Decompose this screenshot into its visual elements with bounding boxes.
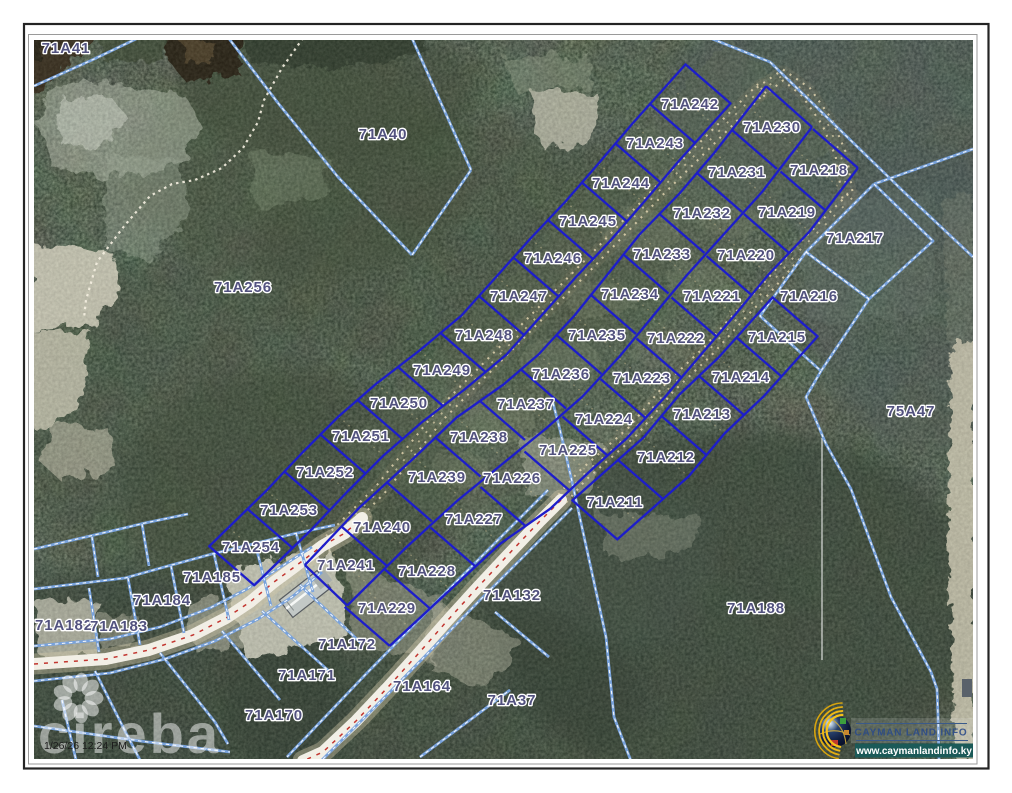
svg-text:71A253: 71A253 <box>260 502 318 519</box>
svg-text:71A217: 71A217 <box>826 230 884 247</box>
svg-text:71A227: 71A227 <box>445 511 503 528</box>
svg-text:71A248: 71A248 <box>455 327 513 344</box>
svg-text:71A241: 71A241 <box>317 557 375 574</box>
svg-text:71A185: 71A185 <box>183 569 241 586</box>
svg-text:71A236: 71A236 <box>532 366 590 383</box>
svg-text:71A225: 71A225 <box>539 442 597 459</box>
svg-text:71A249: 71A249 <box>413 362 471 379</box>
svg-text:71A245: 71A245 <box>559 213 617 230</box>
svg-text:71A234: 71A234 <box>601 286 659 303</box>
svg-text:71A243: 71A243 <box>626 135 684 152</box>
svg-text:1/26/26 12:24 PM: 1/26/26 12:24 PM <box>44 740 127 752</box>
svg-text:71A215: 71A215 <box>748 329 806 346</box>
svg-text:71A182: 71A182 <box>35 617 93 634</box>
svg-text:71A171: 71A171 <box>278 667 336 684</box>
svg-text:71A226: 71A226 <box>483 470 541 487</box>
svg-text:71A238: 71A238 <box>450 429 508 446</box>
svg-text:71A172: 71A172 <box>318 636 376 653</box>
svg-text:71A247: 71A247 <box>490 288 548 305</box>
svg-text:71A239: 71A239 <box>408 469 466 486</box>
svg-text:www.caymanlandinfo.ky: www.caymanlandinfo.ky <box>855 746 972 757</box>
svg-text:71A37: 71A37 <box>488 692 537 709</box>
svg-text:71A223: 71A223 <box>613 370 671 387</box>
svg-text:71A216: 71A216 <box>780 288 838 305</box>
svg-text:71A211: 71A211 <box>586 494 643 511</box>
svg-text:71A232: 71A232 <box>673 205 731 222</box>
svg-text:71A250: 71A250 <box>370 395 428 412</box>
svg-text:71A218: 71A218 <box>790 162 848 179</box>
svg-text:71A214: 71A214 <box>712 369 770 386</box>
svg-text:71A220: 71A220 <box>717 247 775 264</box>
svg-text:71A132: 71A132 <box>483 587 541 604</box>
svg-text:71A231: 71A231 <box>708 164 766 181</box>
svg-text:71A251: 71A251 <box>332 428 390 445</box>
svg-text:71A256: 71A256 <box>214 279 272 296</box>
svg-text:71A228: 71A228 <box>398 563 456 580</box>
svg-text:71A170: 71A170 <box>245 707 303 724</box>
svg-text:75A47: 75A47 <box>887 403 936 420</box>
svg-text:71A237: 71A237 <box>497 396 555 413</box>
svg-text:71A164: 71A164 <box>393 678 451 695</box>
svg-text:71A213: 71A213 <box>673 406 731 423</box>
svg-text:cireba: cireba <box>38 702 221 765</box>
svg-text:71A224: 71A224 <box>575 411 633 428</box>
svg-text:71A244: 71A244 <box>592 175 650 192</box>
svg-text:71A212: 71A212 <box>637 449 695 466</box>
svg-text:71A229: 71A229 <box>358 600 416 617</box>
svg-text:71A41: 71A41 <box>42 40 91 57</box>
svg-text:71A40: 71A40 <box>359 126 408 143</box>
svg-text:71A221: 71A221 <box>683 288 741 305</box>
svg-text:71A219: 71A219 <box>758 204 816 221</box>
svg-text:71A184: 71A184 <box>133 592 191 609</box>
svg-text:71A240: 71A240 <box>353 519 411 536</box>
svg-text:71A242: 71A242 <box>661 96 719 113</box>
svg-text:71A254: 71A254 <box>222 539 280 556</box>
svg-text:CAYMAN LAND INFO: CAYMAN LAND INFO <box>855 728 968 739</box>
svg-text:71A252: 71A252 <box>296 464 354 481</box>
svg-text:71A233: 71A233 <box>633 246 691 263</box>
svg-text:71A235: 71A235 <box>568 327 626 344</box>
svg-text:71A246: 71A246 <box>524 250 582 267</box>
svg-text:71A183: 71A183 <box>90 618 148 635</box>
svg-text:71A222: 71A222 <box>647 330 705 347</box>
svg-text:71A230: 71A230 <box>743 119 801 136</box>
svg-text:71A188: 71A188 <box>727 600 785 617</box>
